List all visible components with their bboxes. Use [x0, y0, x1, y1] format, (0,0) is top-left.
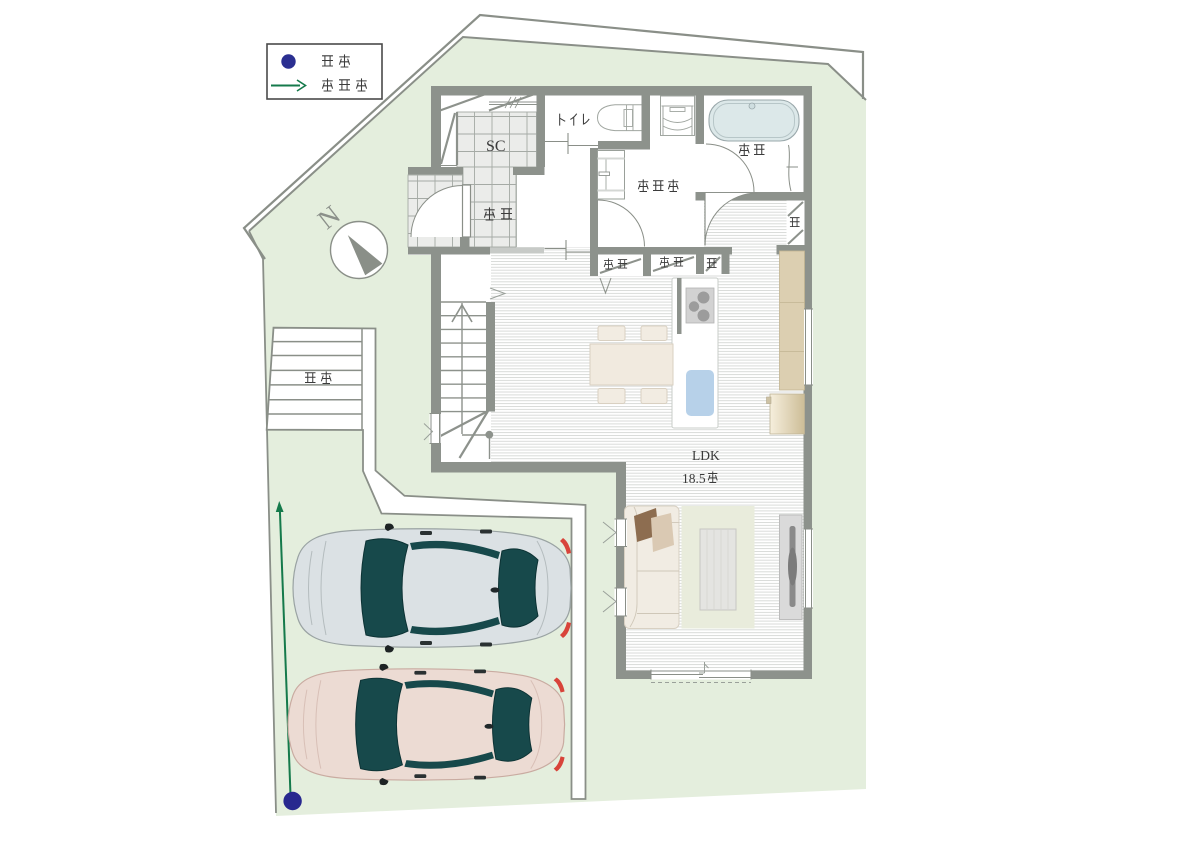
svg-text:SC: SC [486, 138, 506, 155]
svg-text:18.5: 18.5 [682, 471, 706, 486]
svg-text:LDK: LDK [692, 448, 720, 463]
